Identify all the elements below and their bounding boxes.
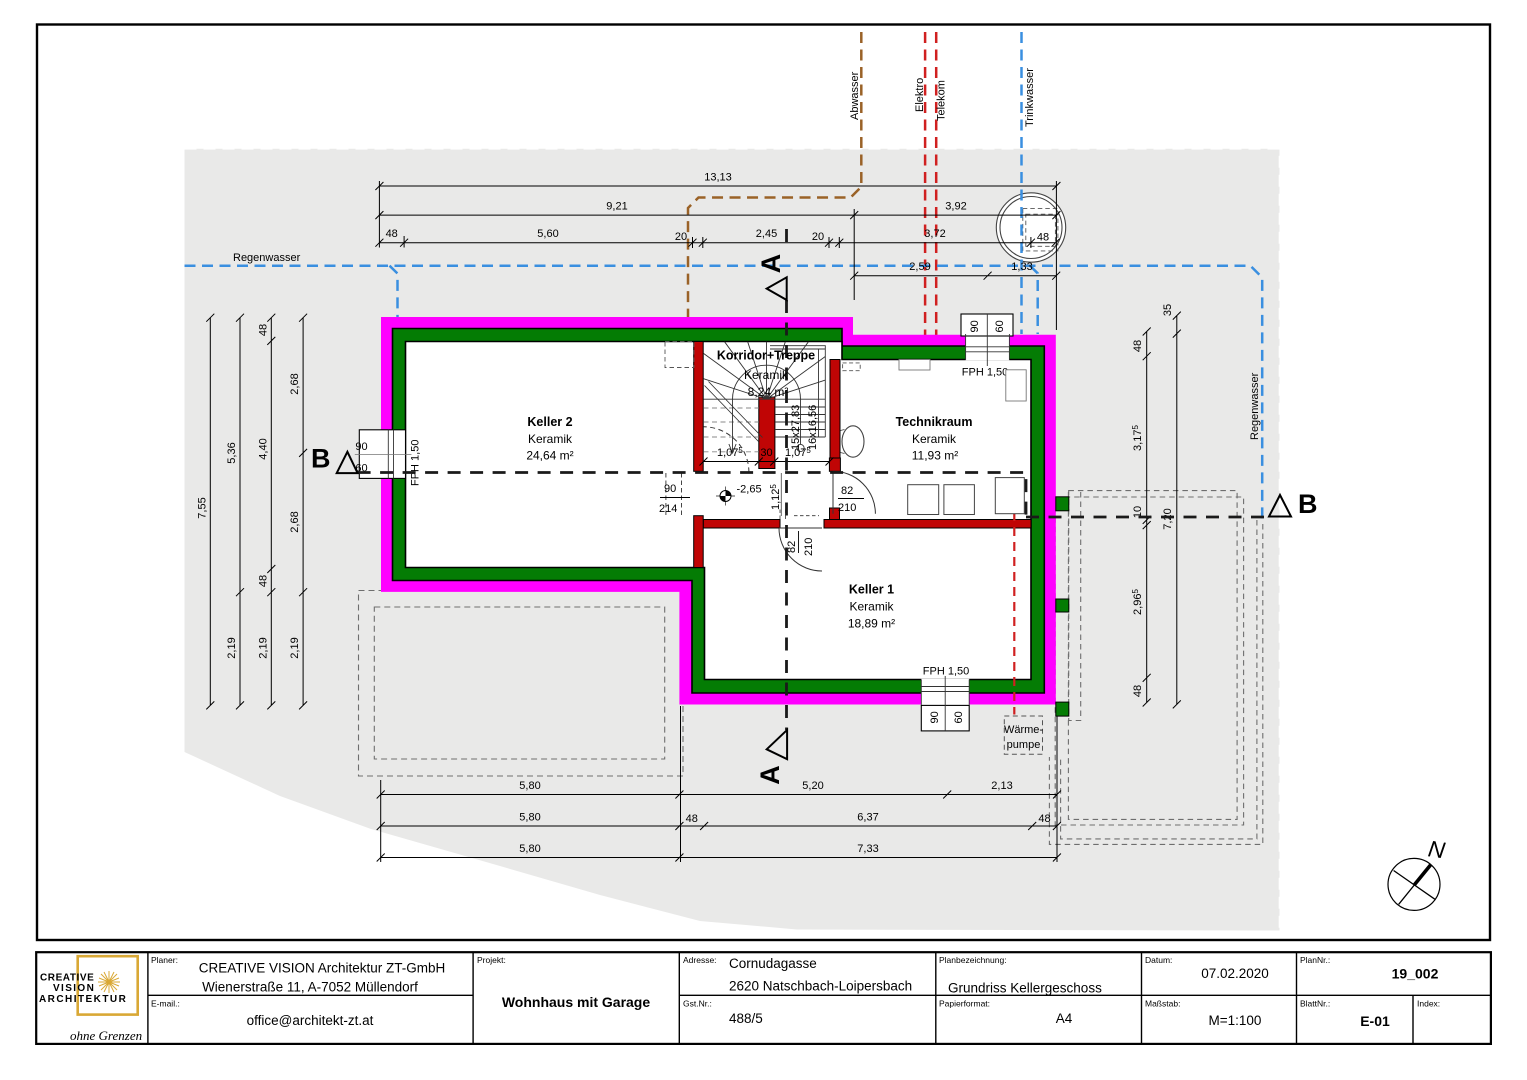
svg-text:18,89 m²: 18,89 m² (848, 617, 895, 631)
svg-text:210: 210 (803, 538, 815, 556)
svg-text:Telekom: Telekom (936, 80, 948, 121)
svg-text:24,64 m²: 24,64 m² (526, 449, 573, 463)
svg-text:B: B (1298, 489, 1318, 519)
svg-text:48: 48 (257, 575, 269, 587)
svg-text:60: 60 (953, 711, 965, 723)
svg-text:19_002: 19_002 (1392, 966, 1439, 982)
svg-text:2,19: 2,19 (257, 637, 269, 658)
svg-text:Wohnhaus mit Garage: Wohnhaus mit Garage (502, 994, 651, 1010)
svg-text:13,13: 13,13 (704, 172, 732, 184)
svg-text:Keramik: Keramik (744, 368, 789, 382)
svg-text:5,80: 5,80 (519, 812, 540, 824)
svg-text:2,13: 2,13 (991, 780, 1012, 792)
svg-text:90: 90 (929, 711, 941, 723)
svg-text:48: 48 (1132, 340, 1144, 352)
svg-text:Grundriss Kellergeschoss: Grundriss Kellergeschoss (948, 981, 1102, 996)
svg-text:82: 82 (841, 485, 853, 497)
svg-text:VISION: VISION (53, 983, 94, 994)
svg-text:BlattNr.:: BlattNr.: (1300, 999, 1330, 1009)
svg-text:48: 48 (257, 324, 269, 336)
svg-text:A4: A4 (1056, 1011, 1073, 1026)
svg-text:16x16,56: 16x16,56 (807, 405, 819, 450)
svg-text:Wienerstraße 11, A-7052 Müllen: Wienerstraße 11, A-7052 Müllendorf (202, 980, 418, 995)
svg-text:6,37: 6,37 (857, 812, 878, 824)
svg-text:Papierformat:: Papierformat: (939, 999, 990, 1009)
svg-text:5,60: 5,60 (537, 228, 558, 240)
svg-text:3,72: 3,72 (924, 228, 945, 240)
svg-text:5,80: 5,80 (519, 843, 540, 855)
svg-text:4,40: 4,40 (257, 438, 269, 459)
svg-text:214: 214 (659, 503, 677, 515)
svg-text:2,19: 2,19 (226, 637, 238, 658)
svg-text:07.02.2020: 07.02.2020 (1201, 966, 1269, 981)
svg-text:30: 30 (760, 447, 772, 459)
svg-text:PlanNr.:: PlanNr.: (1300, 955, 1330, 965)
svg-text:Keramik: Keramik (528, 432, 573, 446)
svg-text:2,68: 2,68 (289, 373, 301, 394)
svg-text:48: 48 (686, 813, 698, 825)
svg-text:35: 35 (1162, 304, 1174, 316)
svg-text:11,93 m²: 11,93 m² (912, 449, 958, 463)
svg-text:Index:: Index: (1417, 999, 1440, 1009)
svg-text:FPH 1,50: FPH 1,50 (410, 440, 422, 486)
svg-text:5,36: 5,36 (226, 442, 238, 463)
svg-text:15x27,83: 15x27,83 (790, 405, 802, 450)
svg-text:FPH 1,50: FPH 1,50 (923, 666, 969, 678)
svg-text:FPH 1,50: FPH 1,50 (962, 367, 1008, 379)
svg-text:5,20: 5,20 (802, 780, 823, 792)
svg-text:2,68: 2,68 (289, 511, 301, 532)
svg-text:210: 210 (838, 502, 856, 514)
svg-text:2,19: 2,19 (289, 637, 301, 658)
svg-text:Regenwasser: Regenwasser (1249, 372, 1261, 440)
svg-text:2620 Natschbach-Loipersbach: 2620 Natschbach-Loipersbach (729, 979, 912, 994)
svg-text:A: A (755, 765, 785, 785)
svg-text:CREATIVE VISION Architektur ZT: CREATIVE VISION Architektur ZT-GmbH (199, 961, 446, 976)
svg-text:Gst.Nr.:: Gst.Nr.: (683, 999, 712, 1009)
svg-text:90: 90 (664, 483, 676, 495)
svg-text:Wärme-: Wärme- (1004, 724, 1043, 736)
svg-text:Keller 2: Keller 2 (527, 415, 572, 429)
svg-text:pumpe: pumpe (1007, 739, 1041, 751)
svg-text:CREATIVE: CREATIVE (40, 973, 94, 984)
svg-text:5,80: 5,80 (519, 780, 540, 792)
svg-text:2,45: 2,45 (756, 228, 777, 240)
svg-text:48: 48 (386, 228, 398, 240)
svg-text:8,24 m²: 8,24 m² (748, 385, 789, 399)
svg-text:60: 60 (994, 320, 1006, 332)
svg-text:90: 90 (969, 320, 981, 332)
svg-text:ARCHITEKTUR: ARCHITEKTUR (39, 994, 127, 1005)
svg-text:Planbezeichnung:: Planbezeichnung: (939, 955, 1007, 965)
svg-text:Cornudagasse: Cornudagasse (729, 956, 817, 971)
svg-text:M=1:100: M=1:100 (1209, 1013, 1262, 1028)
svg-text:Abwasser: Abwasser (849, 71, 861, 120)
svg-text:Elektro: Elektro (914, 78, 926, 112)
svg-text:Technikraum: Technikraum (896, 415, 973, 429)
svg-text:Adresse:: Adresse: (683, 955, 717, 965)
svg-text:ohne Grenzen: ohne Grenzen (70, 1028, 142, 1043)
svg-text:3,92: 3,92 (945, 201, 966, 213)
svg-text:Korridor+Treppe: Korridor+Treppe (717, 349, 815, 363)
svg-text:Trinkwasser: Trinkwasser (1024, 68, 1036, 127)
svg-text:7,55: 7,55 (197, 497, 209, 518)
svg-text:48: 48 (1132, 685, 1144, 697)
svg-text:Projekt:: Projekt: (477, 955, 506, 965)
svg-text:Maßstab:: Maßstab: (1145, 999, 1180, 1009)
svg-text:-2,65: -2,65 (737, 484, 762, 496)
svg-text:2,59: 2,59 (909, 261, 930, 273)
svg-text:E-mail.:: E-mail.: (151, 999, 180, 1009)
svg-text:90: 90 (355, 441, 367, 453)
svg-text:1,33: 1,33 (1011, 261, 1032, 273)
svg-text:A: A (756, 254, 786, 274)
svg-text:Keramik: Keramik (912, 432, 957, 446)
svg-text:Keramik: Keramik (849, 600, 894, 614)
svg-text:48: 48 (1037, 232, 1049, 244)
svg-text:B: B (311, 444, 331, 474)
svg-text:7,20: 7,20 (1162, 508, 1174, 529)
svg-text:Datum:: Datum: (1145, 955, 1172, 965)
svg-text:488/5: 488/5 (729, 1011, 763, 1026)
svg-text:Keller 1: Keller 1 (849, 583, 894, 597)
svg-text:9,21: 9,21 (606, 201, 627, 213)
svg-text:7,33: 7,33 (857, 843, 878, 855)
svg-text:20: 20 (675, 231, 687, 243)
svg-text:Regenwasser: Regenwasser (233, 252, 301, 264)
svg-text:E-01: E-01 (1360, 1013, 1390, 1029)
svg-text:20: 20 (812, 231, 824, 243)
svg-text:office@architekt-zt.at: office@architekt-zt.at (247, 1013, 374, 1028)
svg-text:48: 48 (1038, 813, 1050, 825)
svg-text:Planer:: Planer: (151, 955, 178, 965)
